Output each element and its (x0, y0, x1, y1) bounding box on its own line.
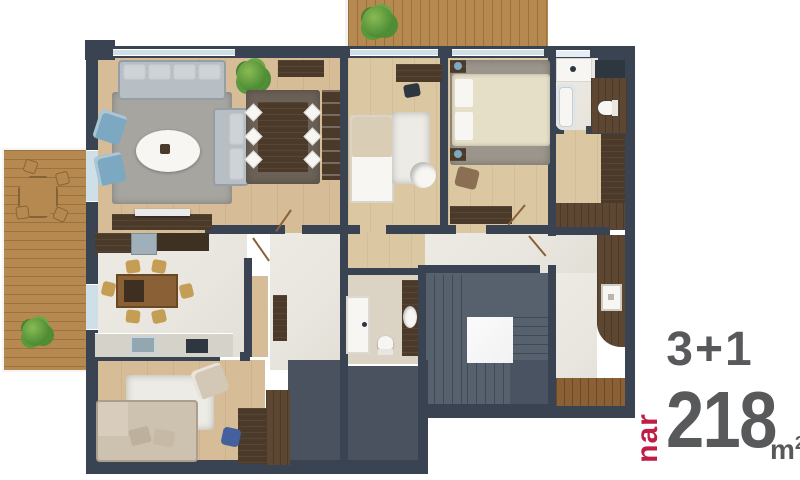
kitchen-upper-counter (95, 233, 131, 253)
kitchen-chair (125, 309, 140, 323)
bedroom2-desk-chair (403, 83, 421, 99)
nightstand-lamp (454, 62, 462, 70)
kitchen-lower-counter (95, 333, 233, 357)
living-sofa-side (213, 108, 249, 186)
wc-toilet (378, 336, 393, 349)
floorplan-canvas: 3+1 nar 218 m2 (0, 0, 800, 480)
area-unit: m2 (770, 434, 800, 464)
staircase (423, 273, 553, 410)
hall-cabinet (273, 295, 287, 341)
dining-tall-cabinet (322, 90, 340, 180)
stair-slab (510, 360, 551, 408)
kitchen-chair (125, 259, 141, 274)
wc-sink (403, 306, 417, 328)
wall-south-master (486, 225, 548, 234)
sofa-cushion (198, 64, 221, 80)
wall-corridor-stairs-v (548, 265, 556, 410)
branding-block: 3+1 nar 218 m2 (630, 320, 800, 478)
area-unit-exponent: 2 (795, 433, 800, 453)
vanity-faucet (570, 66, 576, 72)
wall-vestibule-right (418, 360, 428, 470)
corridor-top-floor (345, 233, 425, 273)
master-dresser (450, 206, 512, 224)
wall-south-living (205, 225, 285, 234)
terrace-top-plant (362, 6, 394, 38)
living-sofa-main (118, 60, 226, 100)
bathtub (556, 84, 576, 130)
bedroom3-wardrobe (266, 390, 290, 465)
room-config-label: 3+1 (630, 326, 790, 374)
kitchen-door-leaf (252, 237, 270, 261)
wall-bottom-right (418, 404, 635, 418)
sofa-pillow (128, 426, 151, 446)
wall-south-bedroom2-b (386, 225, 456, 234)
bowl-chair (410, 162, 436, 188)
bed-pillow (455, 79, 473, 107)
toilet-tank (612, 100, 618, 116)
sofa-cushion (229, 148, 244, 180)
sofa-cushion (229, 113, 244, 145)
nightstand-lamp (454, 150, 462, 158)
stair-flight-left (425, 275, 467, 408)
coffee-table-decor (160, 144, 170, 154)
wall-living-bedroom2 (340, 46, 348, 236)
armchair-blue (93, 151, 127, 186)
window-bathroom-top (556, 50, 590, 57)
toilet (598, 101, 613, 115)
kitchen-cooktop (186, 339, 208, 353)
wall-bottom-left (86, 460, 350, 474)
stair-flight-right (513, 317, 551, 363)
wall-corridor-stairs (418, 265, 540, 273)
tv-screen (135, 209, 190, 216)
wall-wc-top (340, 268, 426, 275)
sofa-pillow (153, 428, 175, 447)
window-master-top (452, 49, 544, 56)
bedroom3-desk-chair (220, 426, 241, 447)
master-bed (452, 74, 550, 146)
kitchen-sink (130, 336, 156, 354)
bed-pillow (455, 112, 473, 140)
single-bed (350, 115, 394, 203)
area-value: 218 (666, 380, 776, 460)
vestibule-floor (348, 366, 418, 466)
sofa-cushion (148, 64, 171, 80)
window-bedroom2-top (350, 49, 438, 56)
kitchen-fridge (131, 233, 157, 255)
wall-wc-right (418, 268, 426, 368)
terrace-left-plant (22, 318, 50, 346)
kitchen-table-runner (124, 280, 144, 302)
kitchen-upper-counter-dark (157, 233, 209, 251)
sofa-cushion (173, 64, 196, 80)
stair-flight-bottom (467, 363, 513, 408)
bedroom2-desk (396, 64, 442, 82)
entry-wood-mat (556, 378, 625, 406)
wc-door-handle (362, 322, 367, 327)
bathroom-niche (595, 60, 625, 78)
sofa-chaise (98, 402, 128, 436)
stair-landing (467, 317, 513, 363)
closet-wardrobe-bottom (553, 203, 627, 229)
wall-south-closet (548, 227, 610, 235)
wall-vestibule-left (340, 360, 348, 470)
area-unit-base: m (770, 434, 795, 465)
bedroom3-sofa (96, 400, 198, 462)
kitchen-wood-strip (250, 276, 268, 357)
lower-hall-floor (288, 360, 342, 465)
sofa-cushion (123, 64, 146, 80)
wall-vestibule-bottom (340, 460, 428, 474)
bed-blanket (352, 117, 392, 157)
brand-logo: nar (634, 406, 662, 470)
dining-table (258, 102, 308, 172)
window-kitchen-left (86, 284, 98, 330)
tv-unit (112, 214, 212, 230)
kitchen-chair (151, 259, 167, 274)
window-living-top (113, 49, 235, 56)
dining-sideboard (278, 60, 324, 77)
electrical-panel-latch (608, 294, 614, 300)
kitchen-table (116, 274, 178, 308)
living-plant (237, 60, 267, 92)
terrace-stool (15, 205, 30, 220)
wall-bedroom2-master (440, 58, 448, 233)
wc-toilet-tank (378, 349, 393, 355)
wall-kitchen-hall (244, 258, 252, 357)
